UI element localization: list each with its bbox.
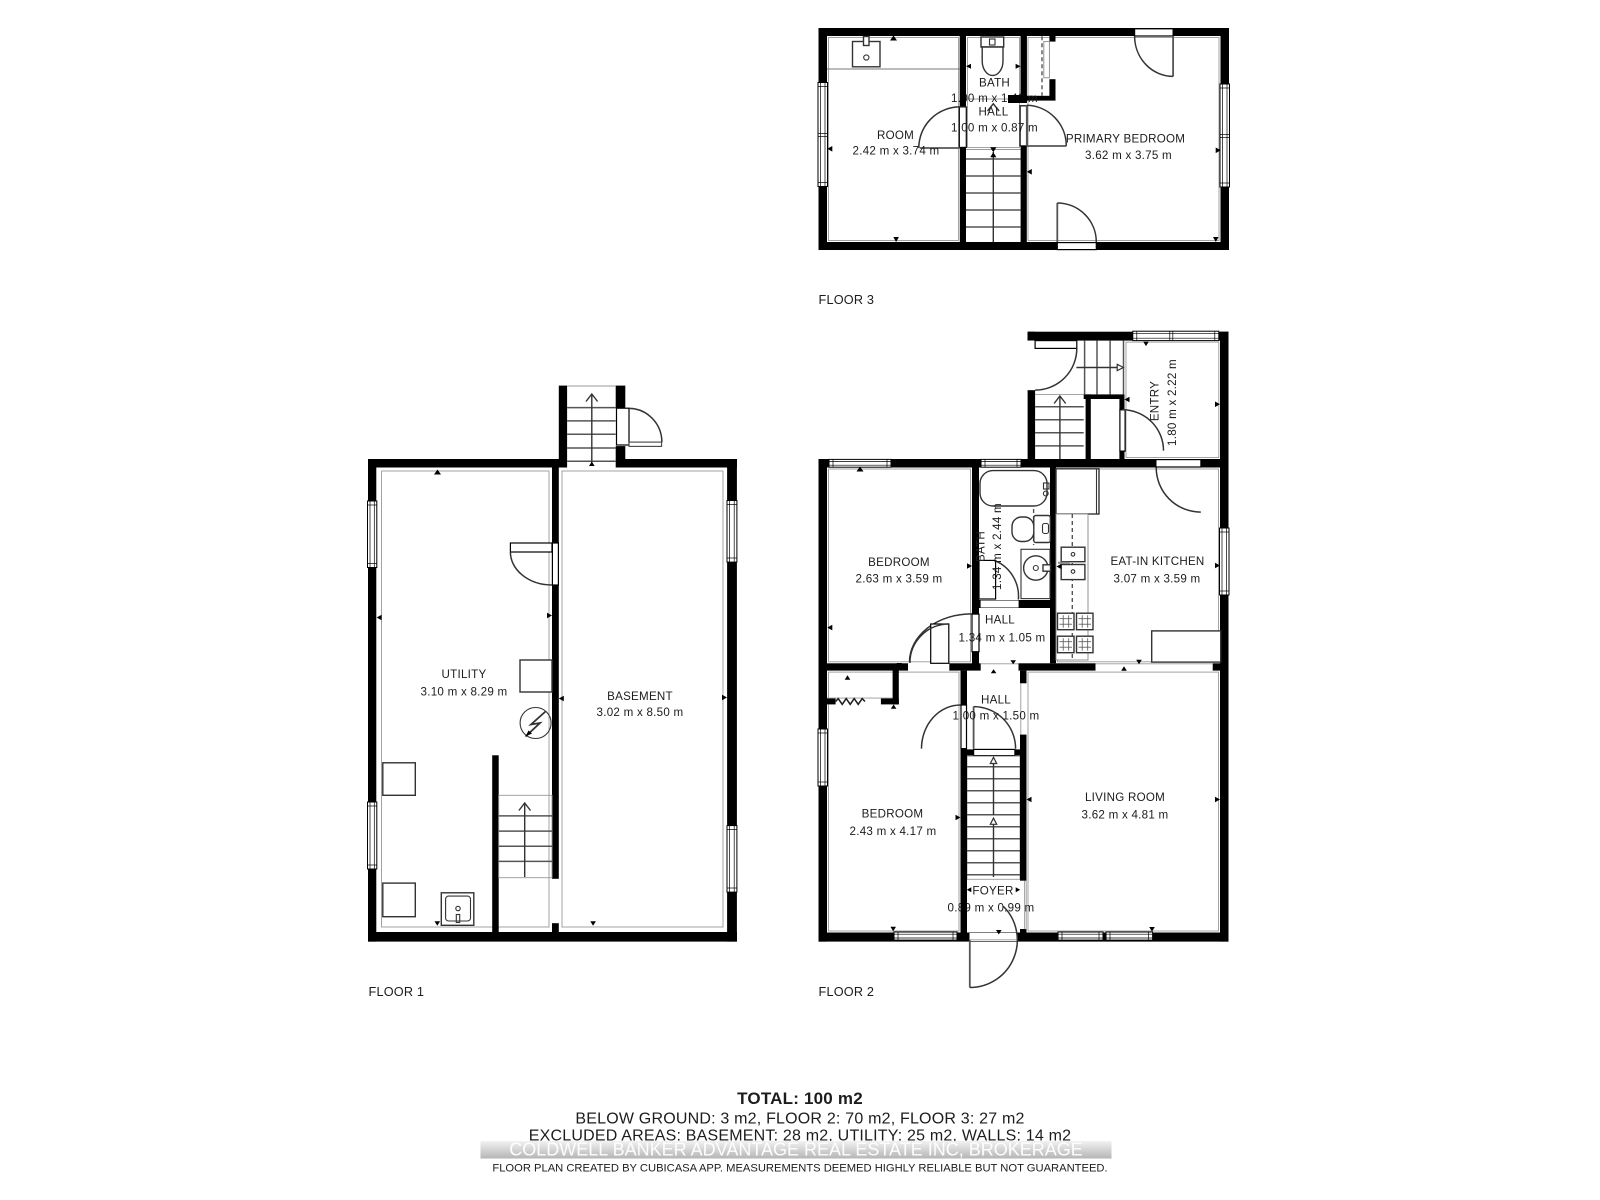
svg-text:BATH: BATH	[979, 77, 1010, 90]
svg-text:1.34 m x 1.05 m: 1.34 m x 1.05 m	[959, 632, 1046, 645]
svg-text:3.07 m x 3.59 m: 3.07 m x 3.59 m	[1114, 573, 1201, 586]
svg-text:HALL: HALL	[981, 694, 1011, 707]
svg-text:BASEMENT: BASEMENT	[607, 690, 673, 703]
svg-text:2.43 m x 4.17 m: 2.43 m x 4.17 m	[850, 825, 937, 838]
svg-text:TOTAL: 100 m2: TOTAL: 100 m2	[737, 1089, 863, 1108]
svg-text:FOYER: FOYER	[972, 885, 1013, 898]
svg-text:FLOOR PLAN CREATED BY CUBICASA: FLOOR PLAN CREATED BY CUBICASA APP. MEAS…	[492, 1163, 1107, 1175]
svg-text:HALL: HALL	[985, 614, 1015, 627]
svg-text:PRIMARY BEDROOM: PRIMARY BEDROOM	[1066, 132, 1185, 145]
svg-text:BELOW GROUND: 3 m2, FLOOR 2: 7: BELOW GROUND: 3 m2, FLOOR 2: 70 m2, FLOO…	[575, 1111, 1024, 1128]
svg-text:ROOM: ROOM	[877, 129, 914, 142]
svg-text:1.00 m x 1.50 m: 1.00 m x 1.50 m	[953, 710, 1040, 723]
svg-text:BEDROOM: BEDROOM	[862, 808, 924, 821]
svg-text:COLDWELL BANKER ADVANTAGE REAL: COLDWELL BANKER ADVANTAGE REAL ESTATE IN…	[509, 1140, 1082, 1160]
svg-text:3.10 m x 8.29 m: 3.10 m x 8.29 m	[421, 686, 508, 699]
svg-text:UTILITY: UTILITY	[442, 668, 487, 681]
svg-text:2.63 m x 3.59 m: 2.63 m x 3.59 m	[856, 573, 943, 586]
svg-text:FLOOR 1: FLOOR 1	[369, 985, 425, 999]
svg-text:1.00 m x 0.87 m: 1.00 m x 0.87 m	[951, 121, 1038, 134]
svg-text:FLOOR 2: FLOOR 2	[819, 985, 875, 999]
svg-text:EAT-IN KITCHEN: EAT-IN KITCHEN	[1110, 555, 1204, 568]
svg-text:BATH: BATH	[975, 531, 988, 562]
svg-text:BEDROOM: BEDROOM	[868, 556, 930, 569]
svg-text:3.62 m x 4.81 m: 3.62 m x 4.81 m	[1082, 809, 1169, 822]
svg-text:3.62 m x 3.75 m: 3.62 m x 3.75 m	[1085, 149, 1172, 162]
svg-text:FLOOR 3: FLOOR 3	[819, 293, 875, 307]
svg-text:3.02 m x 8.50 m: 3.02 m x 8.50 m	[597, 706, 684, 719]
svg-text:1.80 m x 2.22 m: 1.80 m x 2.22 m	[1166, 359, 1179, 446]
svg-text:HALL: HALL	[978, 106, 1008, 119]
svg-text:LIVING ROOM: LIVING ROOM	[1085, 791, 1165, 804]
svg-text:ENTRY: ENTRY	[1148, 381, 1161, 421]
svg-text:2.42 m x 3.74 m: 2.42 m x 3.74 m	[853, 144, 940, 157]
svg-text:1.34 m x 2.44 m: 1.34 m x 2.44 m	[991, 503, 1004, 590]
